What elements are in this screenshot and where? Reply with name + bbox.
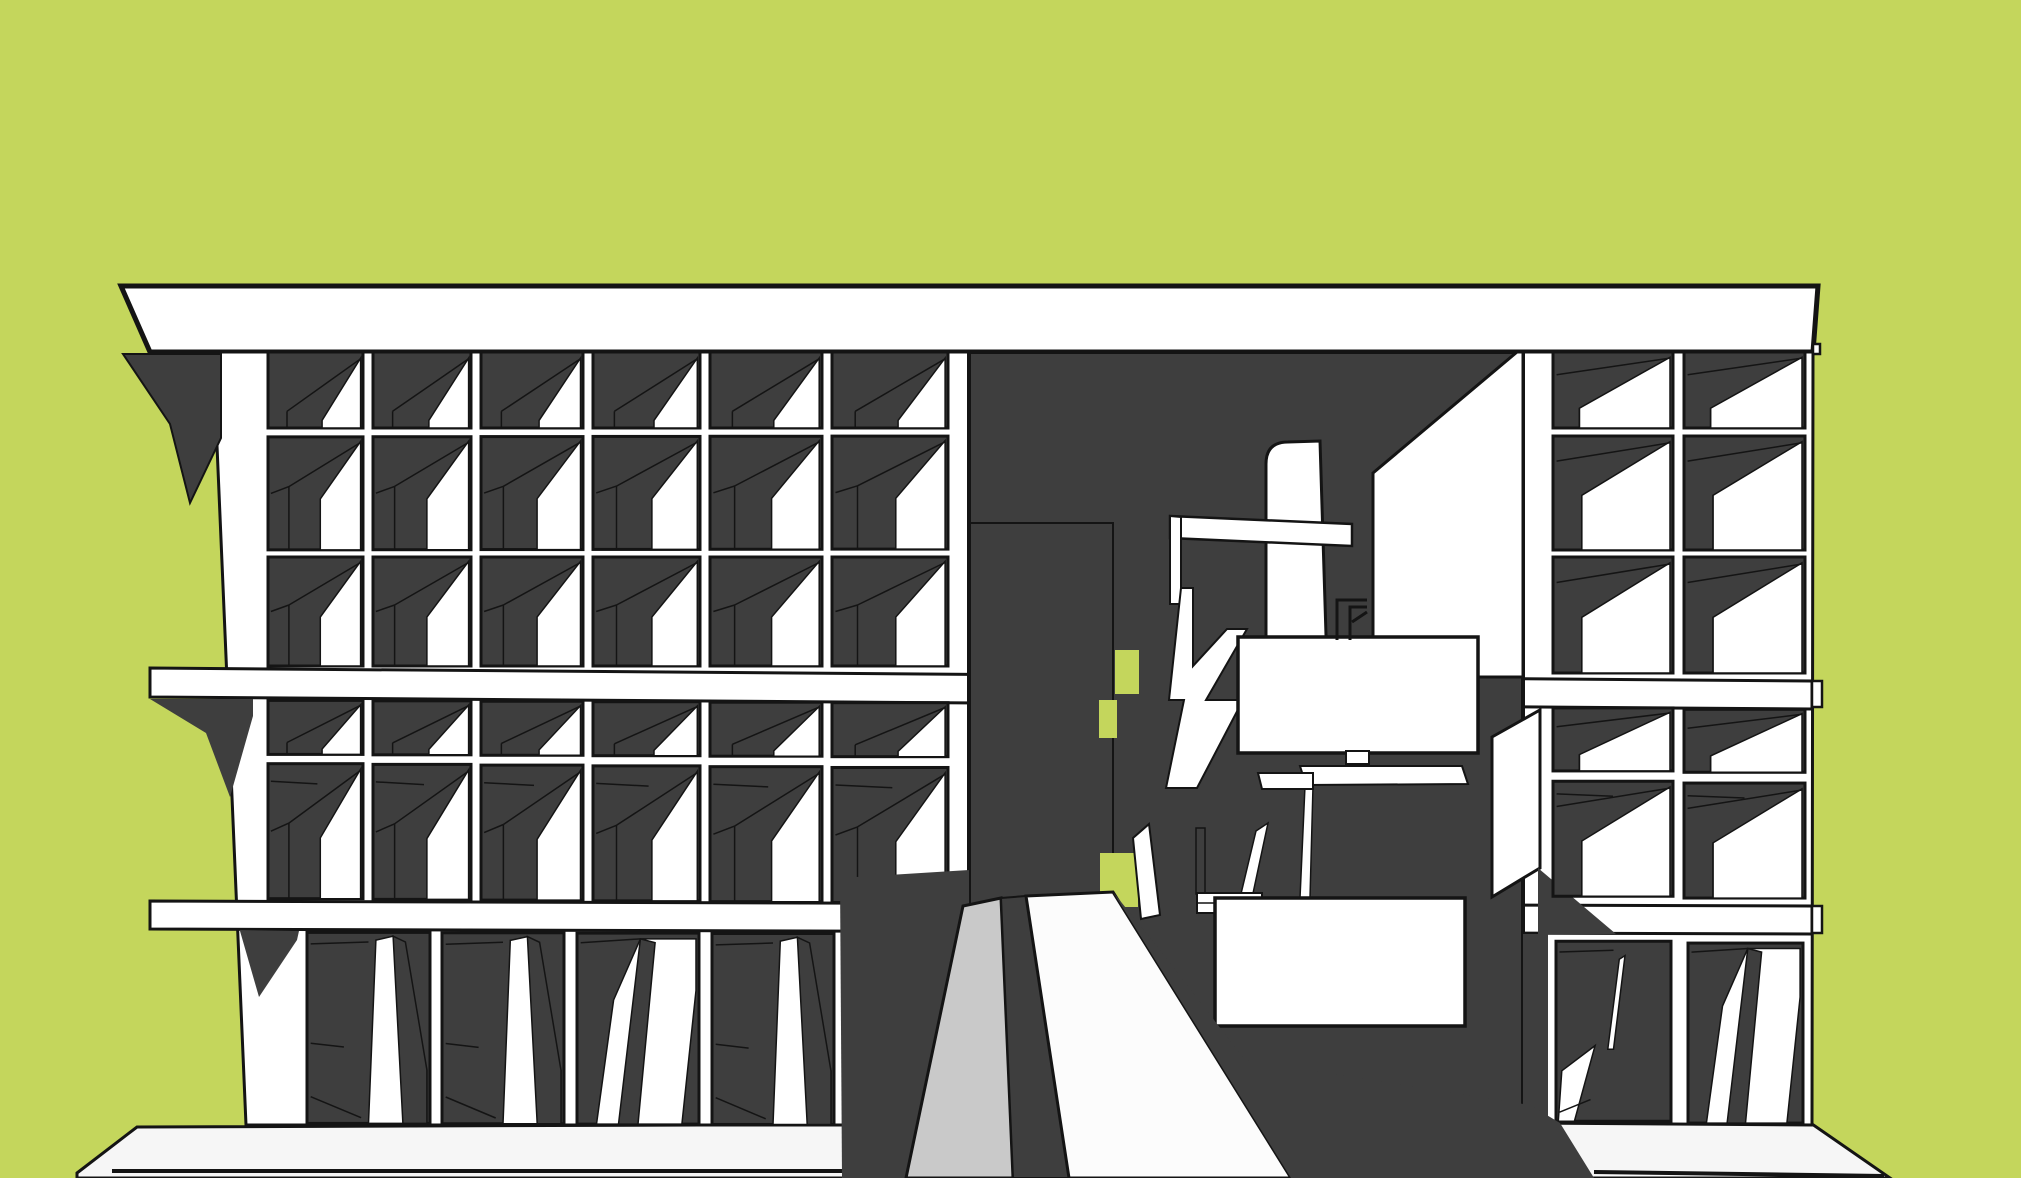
facade-cell-left-r6-c1	[307, 932, 430, 1123]
facade-cell-left-r3-c3	[481, 557, 583, 666]
facade-cell-right-r5-c1	[1553, 781, 1673, 896]
balcony-box-lower	[1215, 898, 1465, 1026]
facade-cell-left-r5-c5	[710, 767, 822, 902]
facade-cell-left-r4-c3	[481, 701, 583, 755]
balcony-box-upper-tab	[1346, 751, 1369, 764]
facade-cell-left-r5-c3	[481, 765, 583, 900]
facade-cell-left-r4-c6	[832, 703, 948, 757]
facade-cell-right-r4-c2	[1684, 709, 1805, 772]
architectural-render-canvas	[0, 0, 2021, 1178]
facade-cell-left-r1-c4	[593, 352, 700, 428]
portal-post	[1170, 516, 1181, 604]
railing-post	[1196, 828, 1205, 894]
facade-cell-left-r1-c6	[832, 352, 948, 428]
facade-cell-left-r3-c1	[268, 557, 363, 666]
under-box-strip-2	[1258, 773, 1313, 789]
facade-cell-left-r2-c5	[710, 436, 822, 549]
facade-cell-left-r4-c4	[593, 702, 700, 756]
building-elevation-svg	[0, 0, 2021, 1178]
facade-cell-left-r5-c1	[268, 764, 363, 899]
facade-cell-left-r2-c2	[373, 437, 471, 550]
facade-cell-left-r6-c3	[577, 933, 699, 1124]
facade-cell-right-r3-c1	[1553, 557, 1673, 673]
balcony-box-upper	[1238, 637, 1478, 753]
facade-cell-left-r6-c2	[442, 933, 564, 1124]
facade-cell-left-r3-c4	[593, 557, 700, 666]
facade-cell-left-r3-c6	[832, 557, 948, 666]
facade-cell-left-r5-c4	[593, 766, 700, 901]
facade-cell-left-r3-c5	[710, 557, 822, 666]
facade-cell-left-r1-c2	[373, 352, 471, 428]
facade-cell-left-r2-c4	[593, 436, 700, 549]
slab-tab-band2	[1812, 681, 1822, 707]
facade-cell-right-r1-c1	[1553, 352, 1673, 428]
facade-cell-right-r3-c2	[1684, 557, 1805, 673]
facade-cell-left-r1-c5	[710, 352, 822, 428]
facade-cell-left-r4-c2	[373, 701, 471, 755]
facade-cell-right-r5-c2	[1684, 783, 1805, 898]
green-gap-upper	[1115, 650, 1139, 694]
green-gap-mid	[1099, 700, 1117, 738]
facade-cell-left-r2-c1	[268, 437, 363, 550]
slab-tab-roof	[1813, 344, 1820, 354]
facade-cell-right-r4-c1	[1553, 708, 1673, 771]
facade-cell-left-r1-c3	[481, 352, 583, 428]
facade-cell-right-r2-c1	[1553, 436, 1673, 550]
facade-cell-right-r2-c2	[1684, 436, 1805, 550]
facade-cell-left-r5-c2	[373, 764, 471, 899]
shadow-pier-strip	[1523, 934, 1548, 1123]
lit-jamb	[1492, 710, 1540, 897]
facade-cell-right-r1-c2	[1684, 352, 1805, 428]
facade-cell-left-r2-c6	[832, 436, 948, 549]
under-box-strip-1	[1300, 766, 1468, 785]
facade-cell-left-r2-c3	[481, 437, 583, 550]
facade-cell-left-r4-c5	[710, 702, 822, 756]
facade-cell-left-r4-c1	[268, 700, 363, 754]
facade-cell-right-r6-c2	[1688, 943, 1803, 1123]
facade-cell-left-r1-c1	[268, 352, 363, 428]
facade-cell-left-r3-c2	[373, 557, 471, 666]
slab-tab-band3	[1812, 906, 1822, 933]
roof-band	[121, 286, 1818, 352]
facade-cell-right-r6-c1	[1556, 941, 1671, 1121]
facade-cell-left-r6-c4	[712, 933, 834, 1124]
